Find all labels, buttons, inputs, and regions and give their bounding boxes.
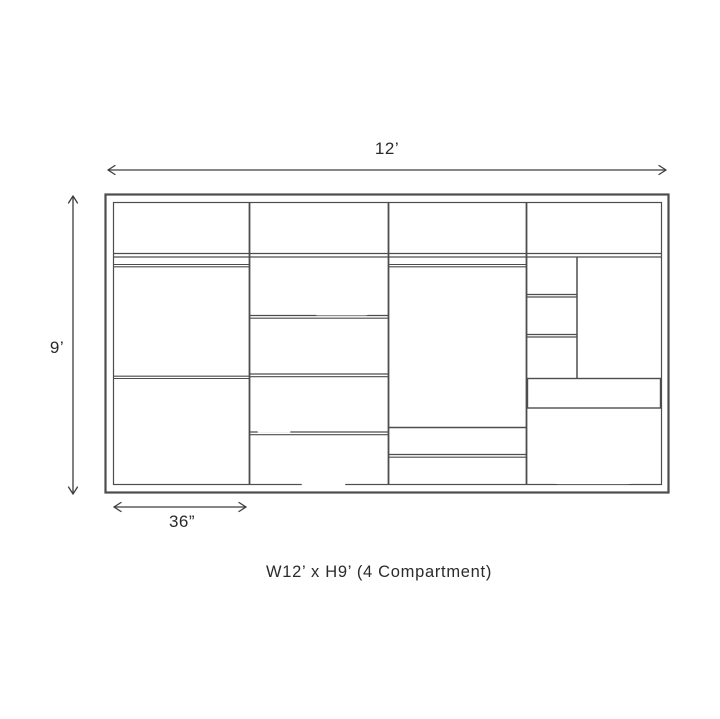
compartment-2-items	[255, 215, 380, 489]
width-dimension-label: 12’	[375, 139, 399, 158]
hanging-rod-compartment3	[389, 265, 527, 267]
storage-box-icon	[295, 326, 332, 372]
compartment3-shelf-2	[389, 455, 527, 458]
hanger-icon	[471, 258, 510, 284]
pillow-stack	[289, 448, 358, 489]
pillow-icon	[289, 448, 358, 476]
hanger-icon	[174, 258, 213, 284]
folded-blanket-icon	[258, 215, 375, 250]
compartment2-shelf-2	[250, 374, 389, 377]
folded-towel-icon	[314, 301, 370, 315]
compartment4-cubby-shelf-2	[527, 335, 578, 338]
folded-duvet-icon	[538, 424, 652, 458]
hanger-group-upper	[152, 258, 213, 284]
height-dimension: 9’	[50, 196, 78, 494]
duvet-stack	[538, 424, 652, 484]
section-width-dimension: 36”	[114, 503, 246, 532]
hanging-rod-compartment1-lower	[114, 376, 250, 378]
hanger-icon	[152, 258, 191, 284]
hanger-icon	[163, 258, 202, 284]
hanger-icon	[482, 258, 521, 284]
towel-stack-right	[314, 269, 370, 315]
top-shelf	[114, 254, 662, 258]
compartment4-cubby-shelf-1	[527, 295, 578, 298]
diagram-caption: W12’ x H9’ (4 Compartment)	[266, 563, 492, 581]
storage-box-icon	[255, 326, 292, 372]
folded-towel-icon	[314, 285, 370, 299]
folded-towel-icon	[258, 287, 300, 298]
hanger-icon	[140, 370, 179, 396]
hanging-rod-compartment1-upper	[114, 265, 250, 267]
storage-box-icon	[255, 386, 292, 432]
height-dimension-label: 9’	[50, 338, 64, 357]
wardrobe-diagram: 12’ 9’ 36”	[0, 0, 720, 719]
small-folded-towel-icon	[344, 419, 380, 428]
folded-blanket-icon	[392, 395, 490, 424]
compartment-4-items	[538, 424, 652, 484]
hanger-icon	[118, 370, 157, 396]
compartment4-drawer	[528, 379, 661, 409]
compartment-3-items	[392, 258, 522, 424]
section-width-label: 36”	[169, 512, 195, 531]
hanger-group-lower	[118, 370, 179, 396]
folded-towel-icon	[258, 303, 300, 314]
diagram-canvas: 12’ 9’ 36”	[0, 0, 720, 719]
folded-duvet-icon	[551, 458, 639, 484]
small-folded-towel-icon	[343, 361, 379, 370]
folded-blanket-icon	[142, 229, 221, 253]
towel-stack-left	[258, 271, 300, 314]
width-dimension: 12’	[108, 139, 666, 175]
hanger-group	[439, 258, 521, 284]
folded-towel-icon	[258, 271, 300, 282]
hanger-icon	[439, 258, 478, 284]
compartment2-shelf-1	[250, 316, 389, 319]
folded-towel-icon	[314, 269, 370, 283]
hanger-icon	[129, 370, 168, 396]
